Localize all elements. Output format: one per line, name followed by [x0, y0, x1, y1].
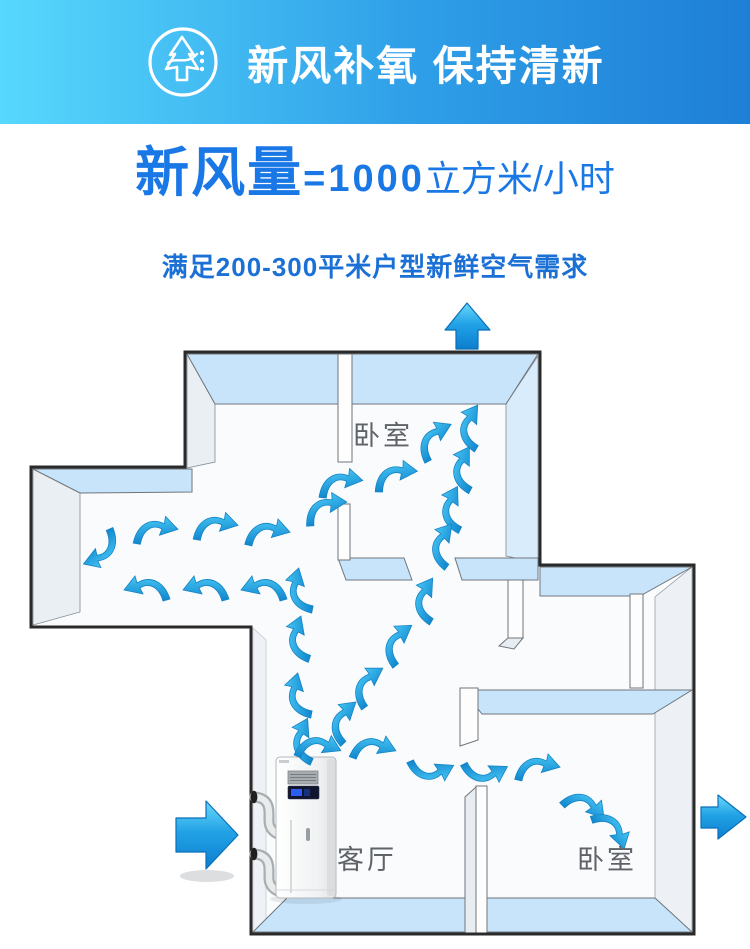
page: 新风补氧 保持清新 新风量 =1000 立方米/小时 满足200-300平米户型…: [0, 0, 750, 949]
outlet-arrow-right: [701, 795, 746, 839]
room-label-bedroom-top: 卧室: [353, 414, 413, 453]
unit-pipe-connector: [251, 791, 258, 803]
outlet-arrow-top: [445, 303, 490, 349]
wall-face: [33, 469, 80, 625]
wall-face: [655, 567, 692, 932]
wall-face: [253, 628, 266, 932]
unit-pipe-connector: [251, 848, 258, 860]
room-label-bedroom-bottom: 卧室: [577, 838, 637, 877]
inlet-arrow-left: [176, 801, 238, 869]
unit-door-handle: [306, 828, 310, 841]
floorplan-illustration: [0, 0, 750, 949]
room-label-living-room: 客厅: [337, 838, 397, 877]
